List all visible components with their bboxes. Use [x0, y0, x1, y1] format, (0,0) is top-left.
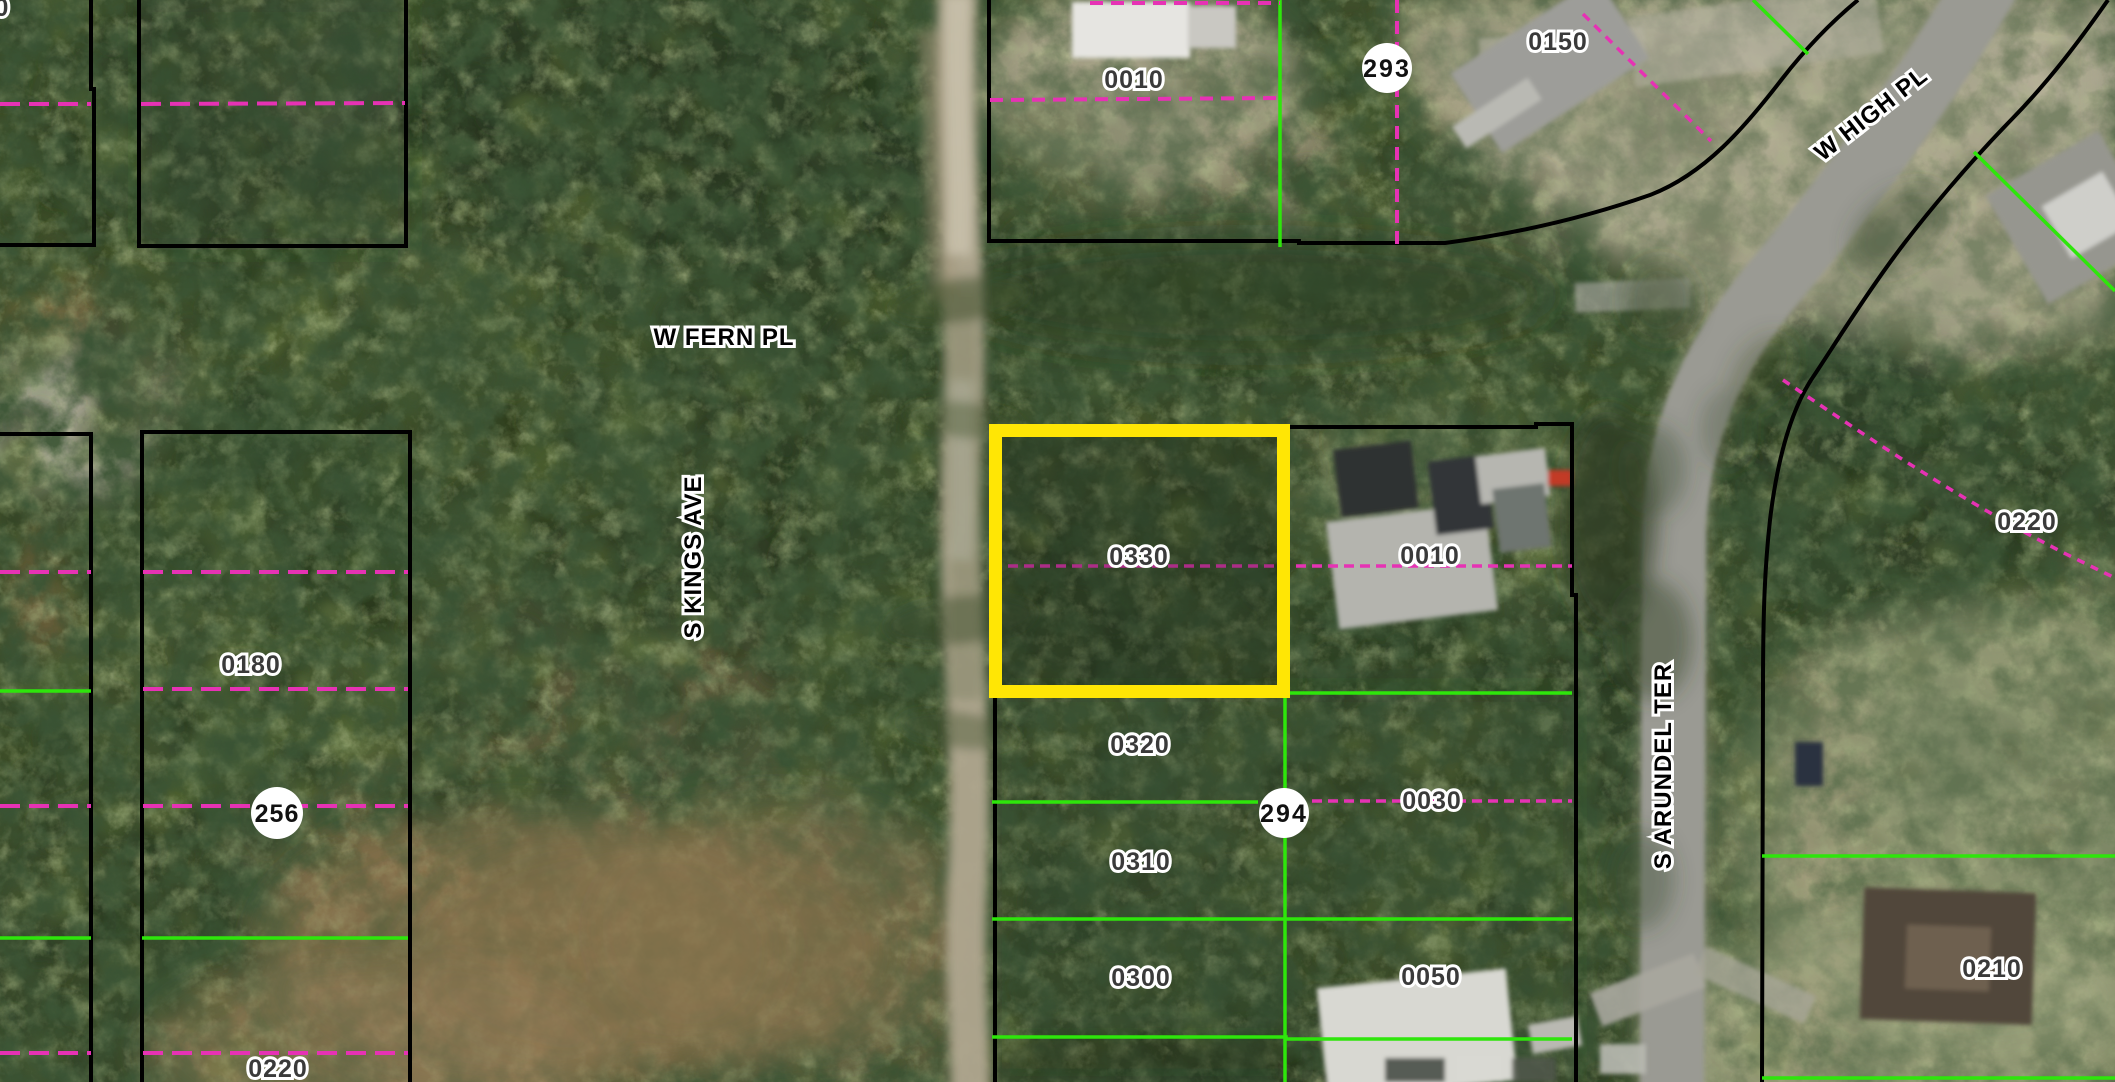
svg-text:0220: 0220 [1997, 508, 2057, 536]
svg-text:0150: 0150 [1528, 28, 1588, 56]
svg-text:S KINGS AVE: S KINGS AVE [680, 475, 707, 638]
svg-text:0010: 0010 [1400, 542, 1460, 570]
svg-text:0320: 0320 [1110, 731, 1170, 759]
svg-text:0180: 0180 [221, 651, 281, 679]
svg-text:0050: 0050 [1401, 963, 1461, 991]
svg-text:293: 293 [1363, 55, 1411, 83]
svg-text:0220: 0220 [248, 1055, 308, 1082]
svg-text:256: 256 [255, 800, 300, 828]
svg-text:0300: 0300 [1111, 964, 1171, 992]
svg-text:0310: 0310 [1111, 848, 1171, 876]
svg-text:0: 0 [0, 0, 9, 22]
svg-text:294: 294 [1260, 800, 1308, 828]
svg-text:S ARUNDEL TER: S ARUNDEL TER [1650, 663, 1677, 869]
svg-text:0030: 0030 [1402, 787, 1462, 815]
svg-text:0330: 0330 [1109, 543, 1169, 571]
svg-text:0010: 0010 [1104, 66, 1164, 94]
svg-text:0210: 0210 [1962, 955, 2022, 983]
svg-text:W FERN PL: W FERN PL [654, 324, 795, 351]
